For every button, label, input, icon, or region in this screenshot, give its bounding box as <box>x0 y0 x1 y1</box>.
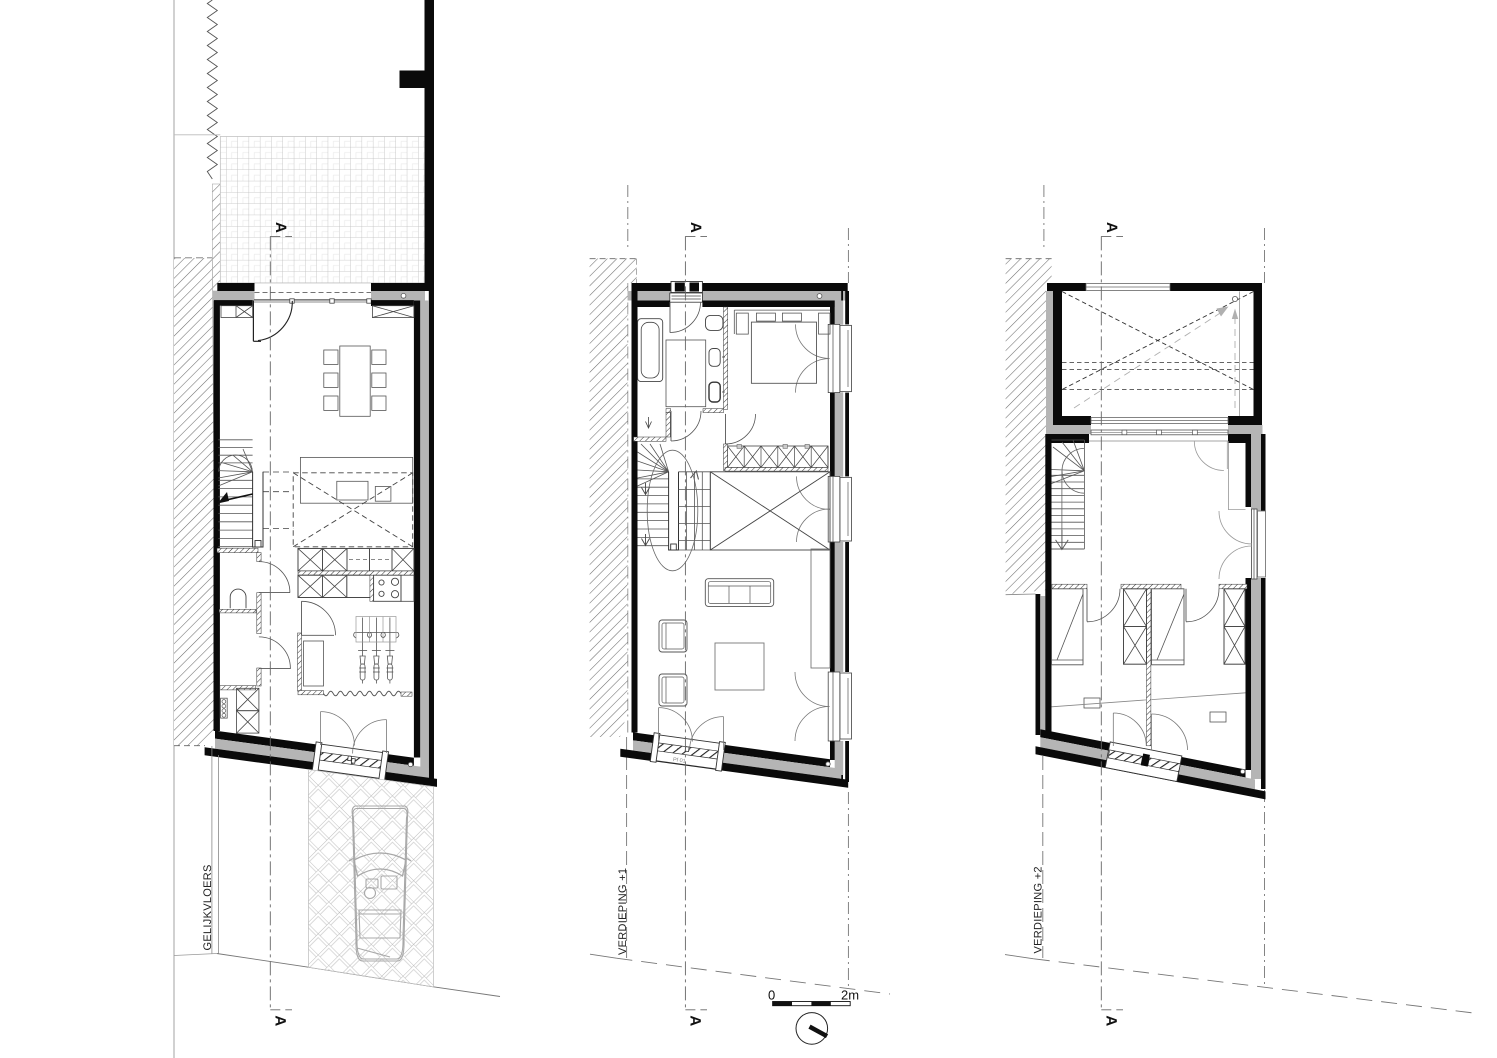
svg-text:A: A <box>1103 1015 1120 1026</box>
svg-text:A: A <box>687 1015 704 1026</box>
svg-text:A: A <box>1103 222 1120 233</box>
svg-text:GELIJKVLOERS: GELIJKVLOERS <box>202 864 214 950</box>
svg-text:2m: 2m <box>841 988 859 1003</box>
svg-text:VERDIEPING +1: VERDIEPING +1 <box>617 868 629 955</box>
svg-text:VERDIEPING +2: VERDIEPING +2 <box>1033 866 1045 953</box>
svg-text:A: A <box>272 222 289 233</box>
svg-text:A: A <box>687 222 704 233</box>
svg-text:0: 0 <box>768 988 775 1003</box>
svg-text:A: A <box>272 1015 289 1026</box>
